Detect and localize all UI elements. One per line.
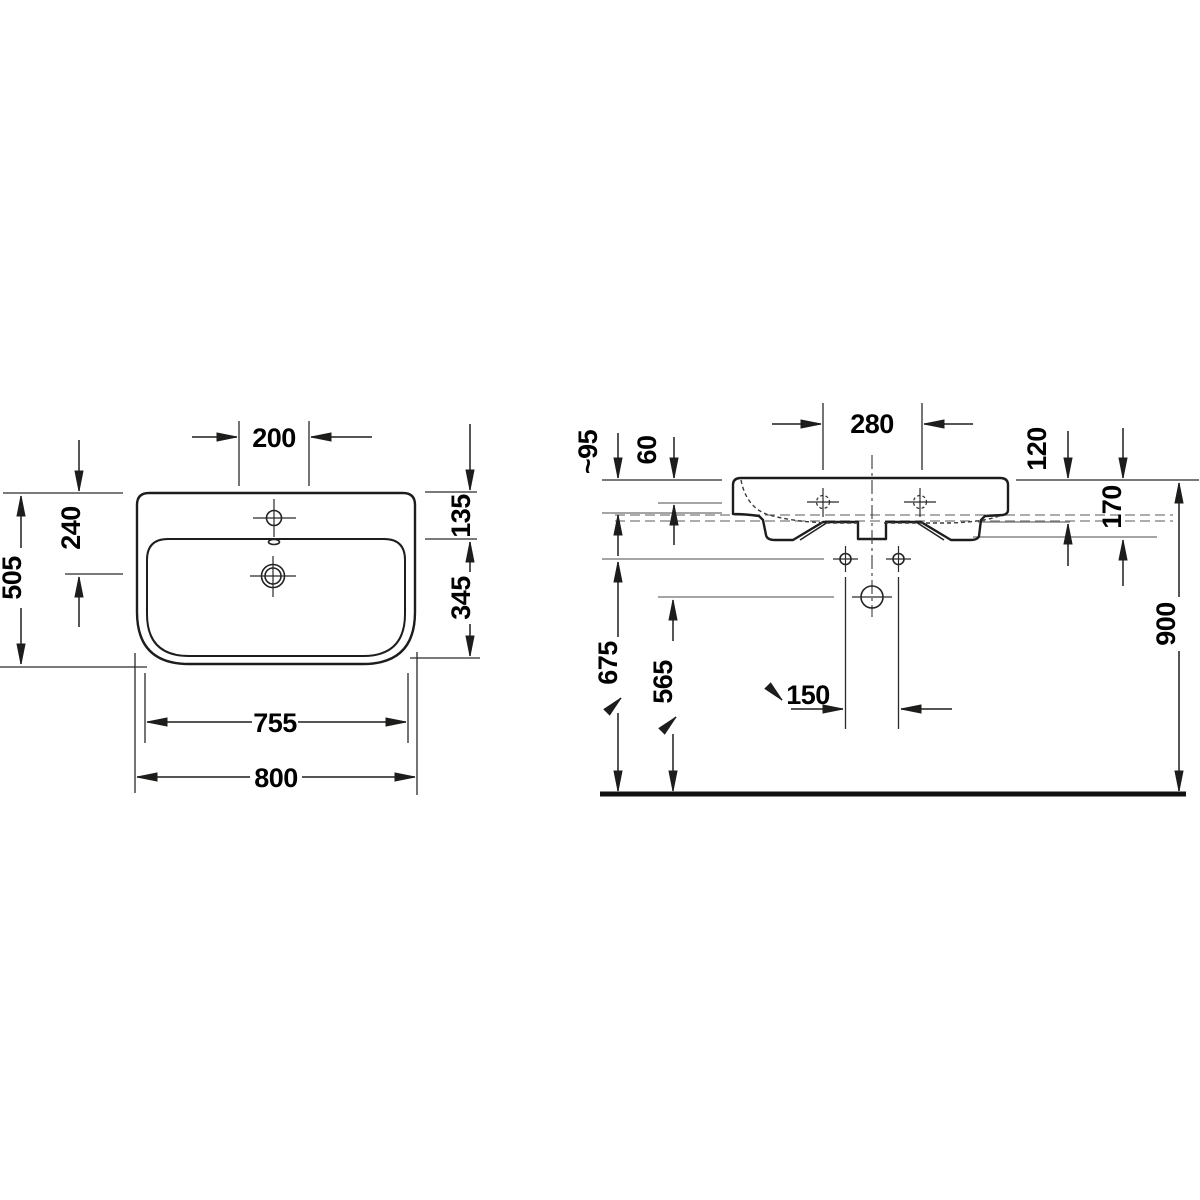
overflow-slot [269, 540, 280, 545]
tap-hole-right [904, 488, 936, 517]
dim-60: 60 [632, 435, 674, 545]
leader-arrow-675 [607, 698, 621, 712]
washbasin-technical-drawing: 200 505 240 135 345 [0, 0, 1200, 1200]
dim-135-345: 135 345 [410, 424, 480, 658]
dim-label-120: 120 [1022, 427, 1052, 471]
dim-label-240: 240 [56, 506, 86, 550]
fixing-hole-left [833, 546, 858, 572]
basin-side-profile [733, 478, 1008, 540]
dim-170: 170 [1097, 428, 1127, 586]
basin-inner-bowl-outline [147, 539, 405, 656]
dim-755: 755 [145, 673, 408, 743]
dim-150: 150 [769, 577, 952, 729]
basin-outer-outline [137, 493, 415, 664]
dim-label-505: 505 [0, 556, 27, 600]
leg-strut-right [916, 522, 944, 540]
dim-900: 900 [1151, 483, 1181, 791]
dim-label-800: 800 [254, 763, 298, 793]
dim-240: 240 [56, 440, 123, 627]
dim-label-755: 755 [253, 708, 297, 738]
dim-120: 120 [1022, 427, 1068, 566]
side-view: 280 ~95 60 120 170 9 [573, 403, 1199, 794]
leader-arrow-150 [769, 687, 782, 700]
dim-label-900: 900 [1151, 602, 1181, 646]
dim-label-565: 565 [648, 660, 678, 704]
technical-drawing-page: 200 505 240 135 345 [0, 0, 1200, 1200]
dim-label-95: ~95 [573, 429, 603, 474]
dim-label-675: 675 [593, 641, 623, 685]
top-view: 200 505 240 135 345 [0, 421, 480, 795]
dim-200: 200 [192, 421, 372, 486]
dim-565: 565 [648, 600, 678, 791]
tap-hole-left [807, 488, 839, 517]
dim-label-135: 135 [446, 494, 476, 538]
dim-675: 675 [593, 562, 623, 791]
dim-label-60: 60 [632, 435, 662, 464]
dim-label-170: 170 [1097, 485, 1127, 529]
dim-95: ~95 [573, 429, 618, 556]
faucet-hole [253, 499, 296, 537]
leg-strut-left [800, 522, 828, 540]
dim-label-345: 345 [446, 576, 476, 620]
drain-hole [250, 556, 296, 597]
leader-arrow-565 [662, 717, 676, 731]
dim-label-150: 150 [786, 680, 830, 710]
dim-label-280: 280 [850, 409, 894, 439]
fixing-hole-right [886, 546, 911, 572]
dim-label-200: 200 [252, 423, 296, 453]
